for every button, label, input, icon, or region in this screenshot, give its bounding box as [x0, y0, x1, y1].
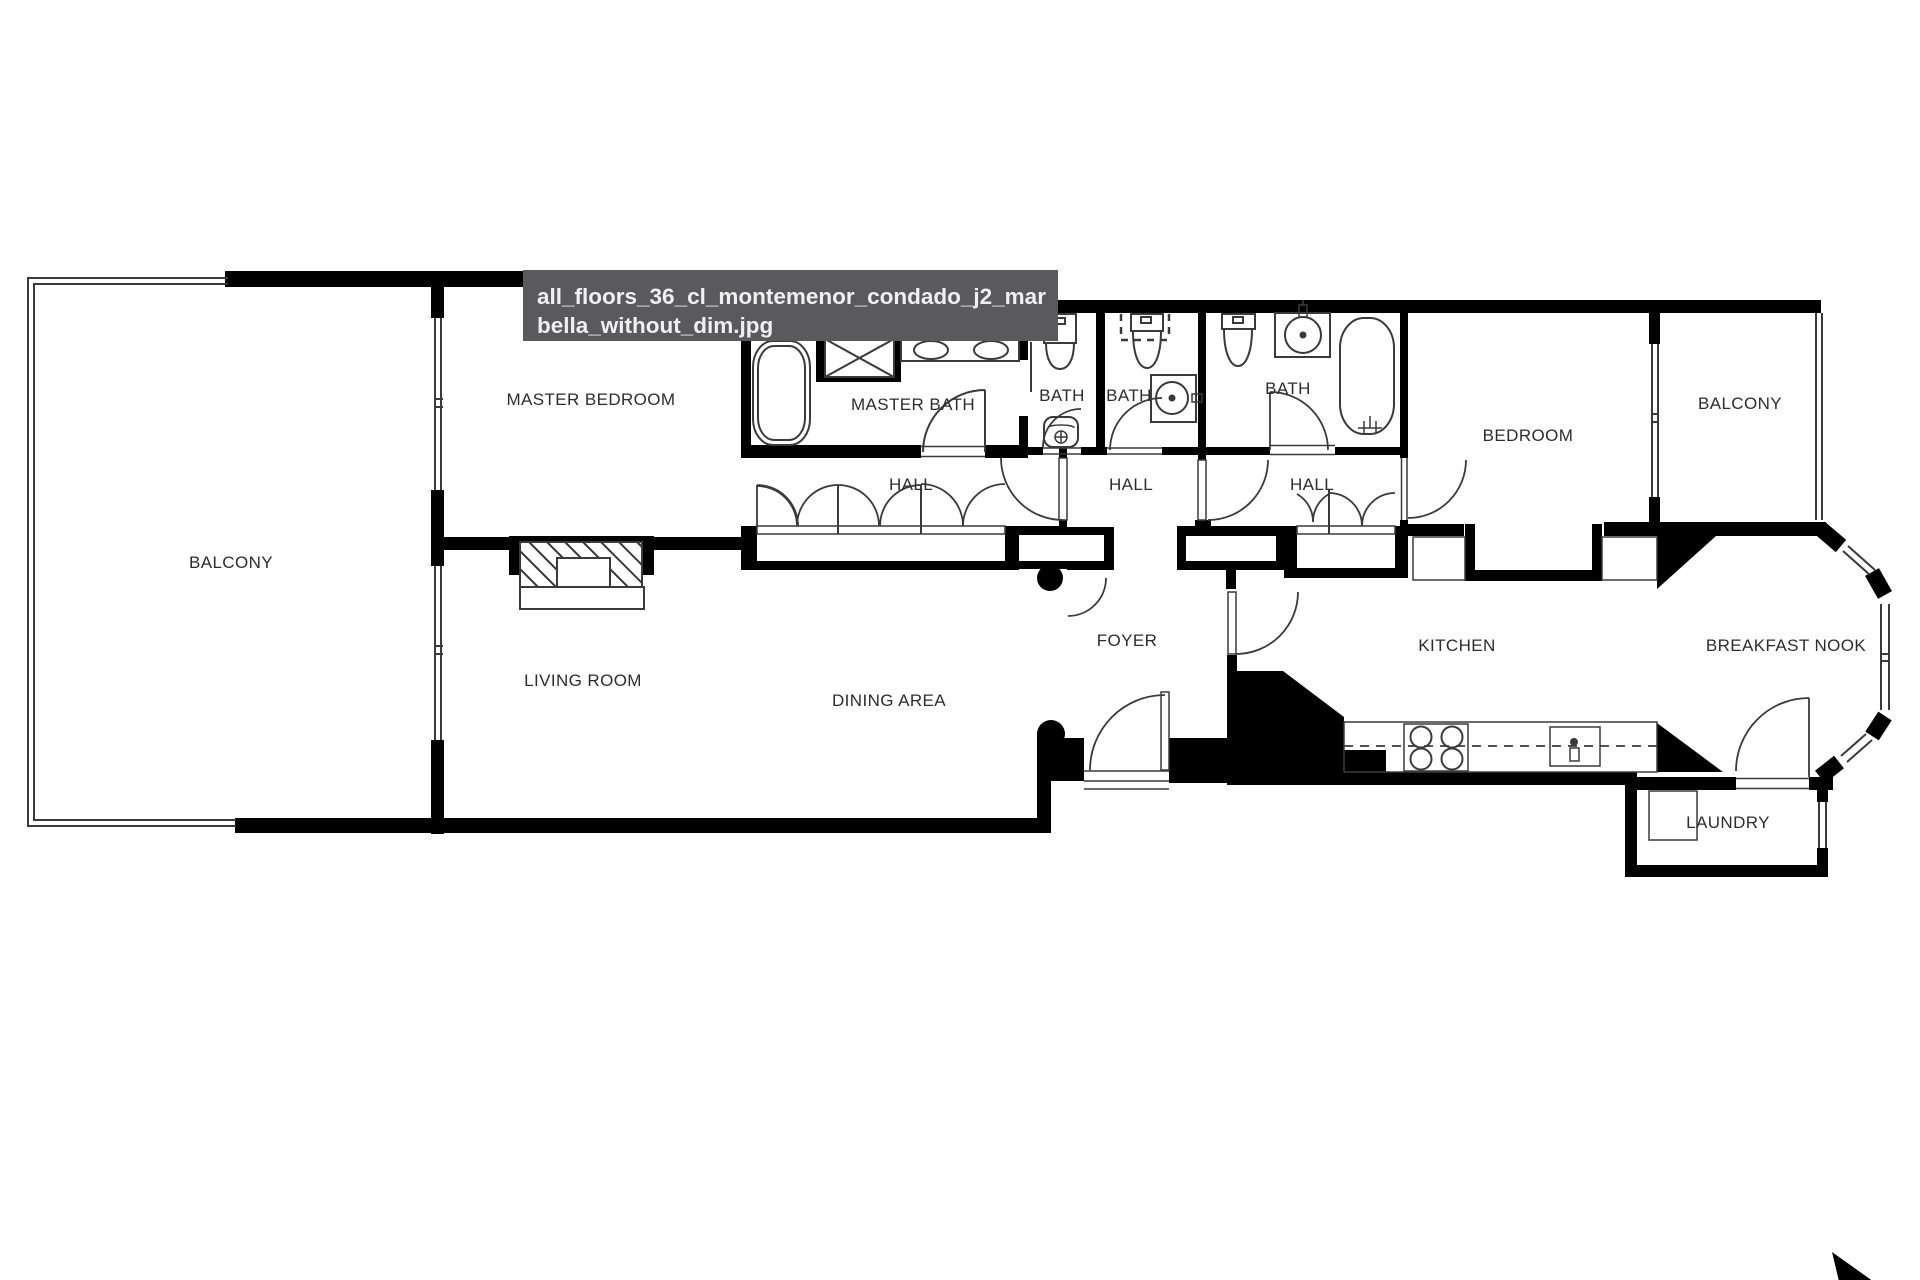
svg-text:HALL: HALL [1109, 475, 1153, 494]
svg-text:MASTER BATH: MASTER BATH [851, 395, 975, 414]
svg-text:bella_without_dim.jpg: bella_without_dim.jpg [537, 313, 773, 338]
svg-text:LIVING ROOM: LIVING ROOM [524, 671, 642, 690]
svg-text:KITCHEN: KITCHEN [1418, 636, 1495, 655]
svg-text:BREAKFAST NOOK: BREAKFAST NOOK [1706, 636, 1866, 655]
svg-text:BATH: BATH [1265, 379, 1311, 398]
svg-text:BALCONY: BALCONY [1698, 394, 1782, 413]
svg-text:HALL: HALL [1290, 475, 1334, 494]
svg-text:DINING AREA: DINING AREA [832, 691, 946, 710]
svg-text:BEDROOM: BEDROOM [1483, 426, 1574, 445]
svg-text:FOYER: FOYER [1097, 631, 1158, 650]
svg-text:HALL: HALL [889, 475, 933, 494]
svg-text:BATH: BATH [1106, 386, 1152, 405]
svg-text:BATH: BATH [1039, 386, 1085, 405]
svg-text:BALCONY: BALCONY [189, 553, 273, 572]
svg-text:LAUNDRY: LAUNDRY [1686, 813, 1770, 832]
svg-text:MASTER BEDROOM: MASTER BEDROOM [506, 390, 675, 409]
svg-text:all_floors_36_cl_montemenor_co: all_floors_36_cl_montemenor_condado_j2_m… [537, 284, 1046, 309]
